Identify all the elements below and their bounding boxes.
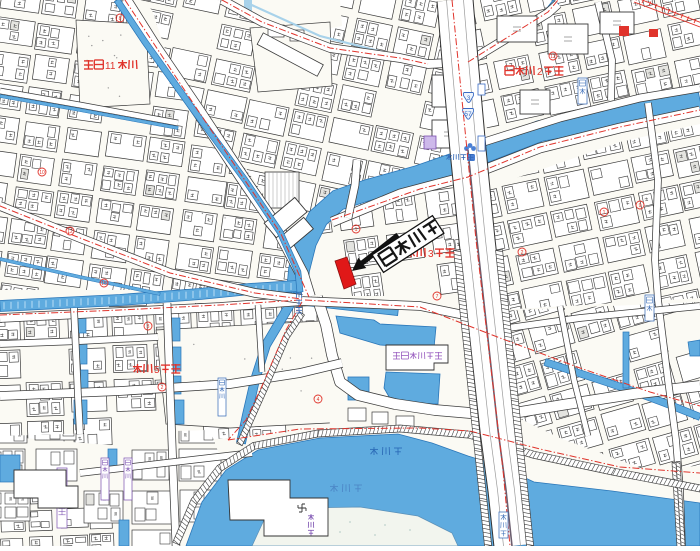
svg-text:3: 3 xyxy=(428,249,434,260)
svg-text:2: 2 xyxy=(537,67,543,78)
svg-text:1: 1 xyxy=(355,227,358,233)
svg-text:57: 57 xyxy=(464,111,472,118)
svg-text:7: 7 xyxy=(436,294,439,300)
svg-text:2: 2 xyxy=(161,385,164,391)
svg-text:10: 10 xyxy=(39,170,45,176)
svg-text:2: 2 xyxy=(521,250,524,256)
svg-text:3: 3 xyxy=(147,324,150,330)
svg-text:4: 4 xyxy=(317,397,320,403)
svg-text:15: 15 xyxy=(101,281,107,287)
svg-text:1: 1 xyxy=(603,210,606,216)
svg-text:12: 12 xyxy=(67,229,73,235)
svg-text:12: 12 xyxy=(550,54,556,60)
svg-text:5: 5 xyxy=(154,365,160,376)
svg-text:11: 11 xyxy=(105,61,116,72)
svg-text:8: 8 xyxy=(119,16,122,22)
svg-text:3: 3 xyxy=(467,95,471,102)
svg-text:9: 9 xyxy=(639,203,642,209)
